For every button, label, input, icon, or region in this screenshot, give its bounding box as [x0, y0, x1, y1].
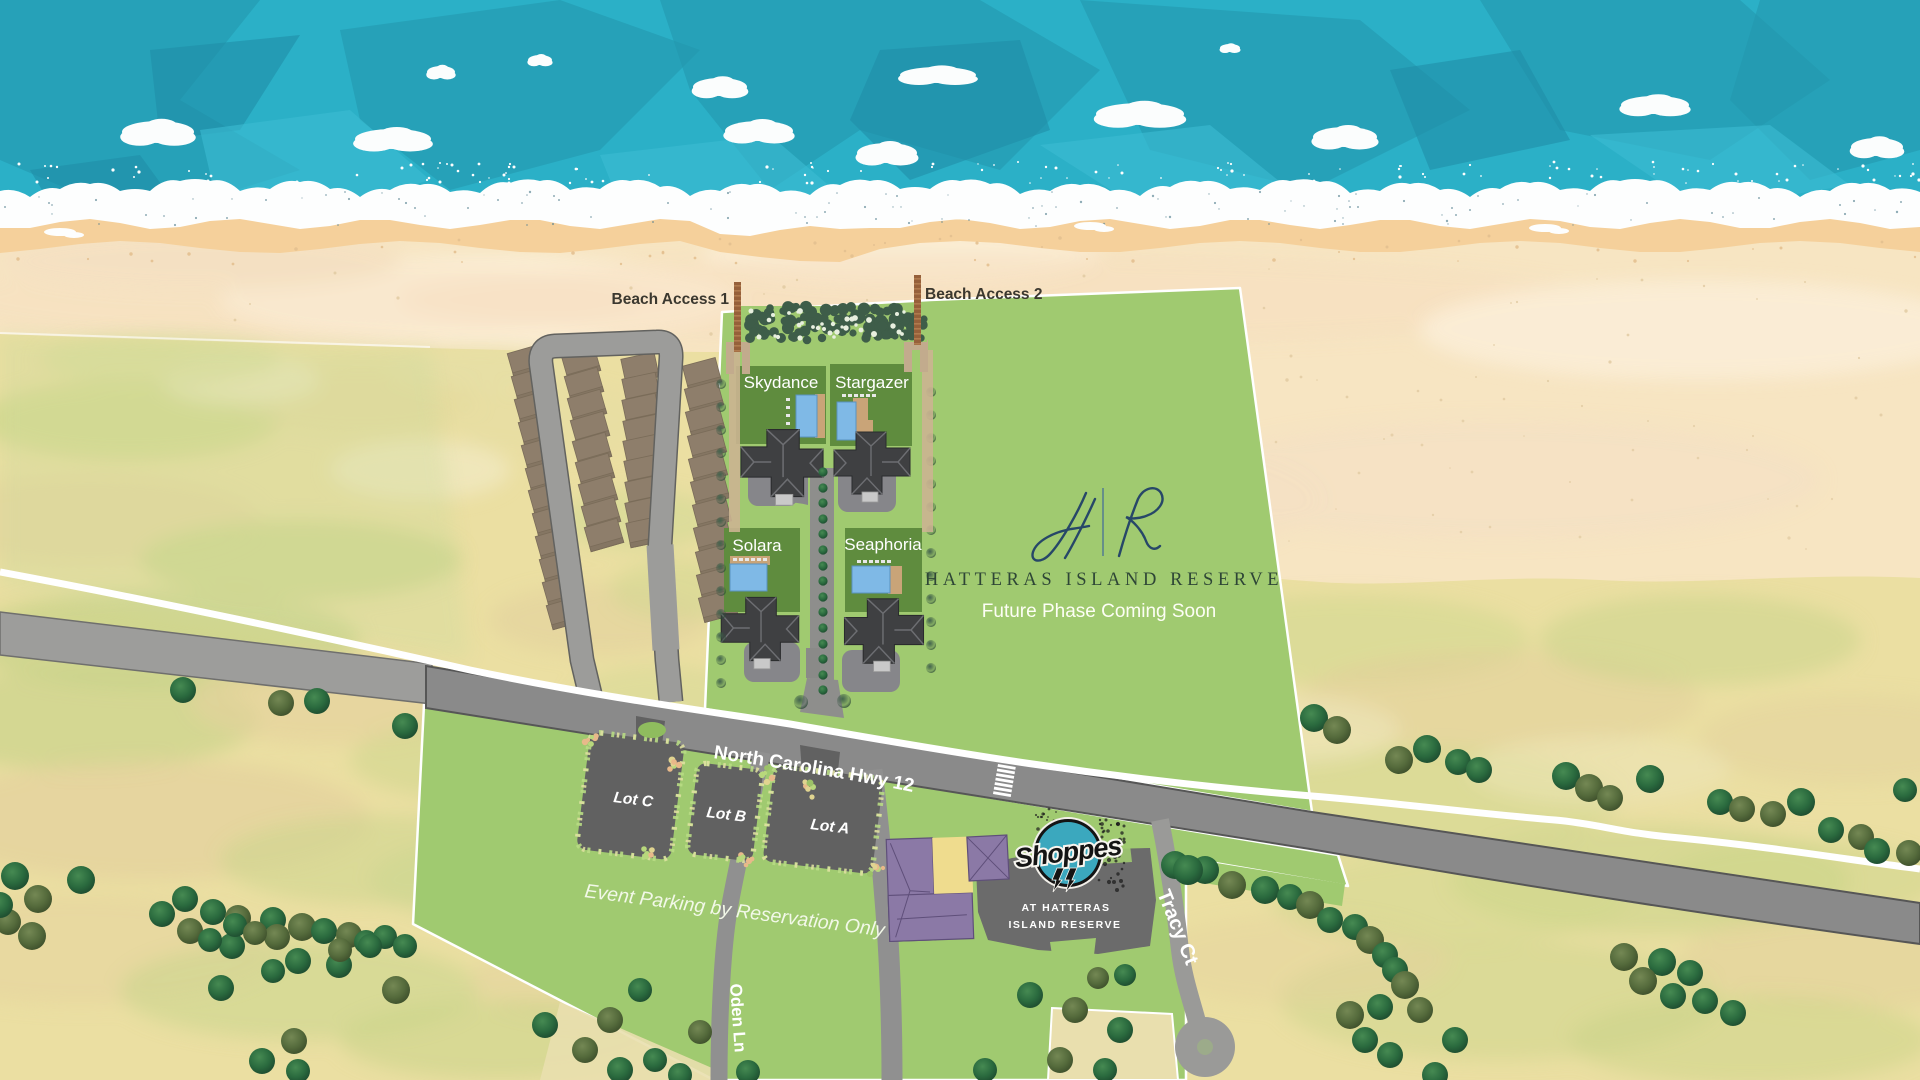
svg-text:HATTERAS ISLAND RESERVE: HATTERAS ISLAND RESERVE — [925, 570, 1283, 590]
svg-text:Beach Access 1: Beach Access 1 — [612, 291, 730, 308]
svg-text:Skydance: Skydance — [744, 373, 819, 392]
svg-text:Stargazer: Stargazer — [835, 373, 909, 392]
svg-text:Beach Access 2: Beach Access 2 — [925, 286, 1042, 303]
svg-text:Seaphoria: Seaphoria — [844, 535, 922, 554]
svg-text:Future Phase Coming Soon: Future Phase Coming Soon — [982, 601, 1216, 622]
svg-text:ISLAND RESERVE: ISLAND RESERVE — [1009, 919, 1122, 931]
svg-text:AT HATTERAS: AT HATTERAS — [1021, 902, 1110, 914]
svg-text:Solara: Solara — [732, 536, 782, 555]
